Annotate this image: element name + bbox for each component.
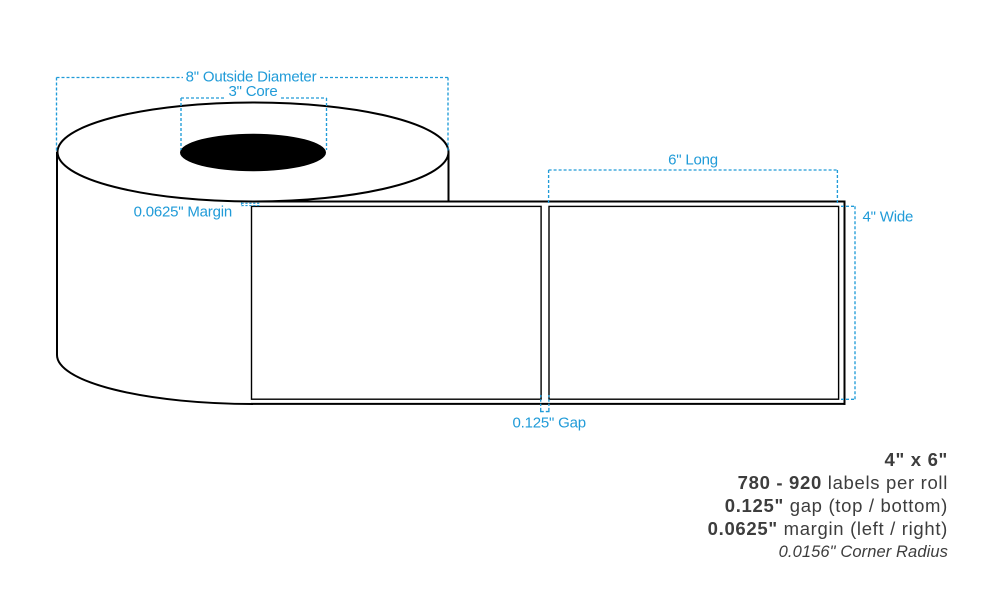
svg-text:0.0625" Margin: 0.0625" Margin [134,204,232,221]
svg-text:0.125" Gap: 0.125" Gap [513,415,586,432]
svg-text:3" Core: 3" Core [229,83,278,100]
svg-text:6" Long: 6" Long [668,152,718,169]
svg-text:4" Wide: 4" Wide [863,209,914,226]
